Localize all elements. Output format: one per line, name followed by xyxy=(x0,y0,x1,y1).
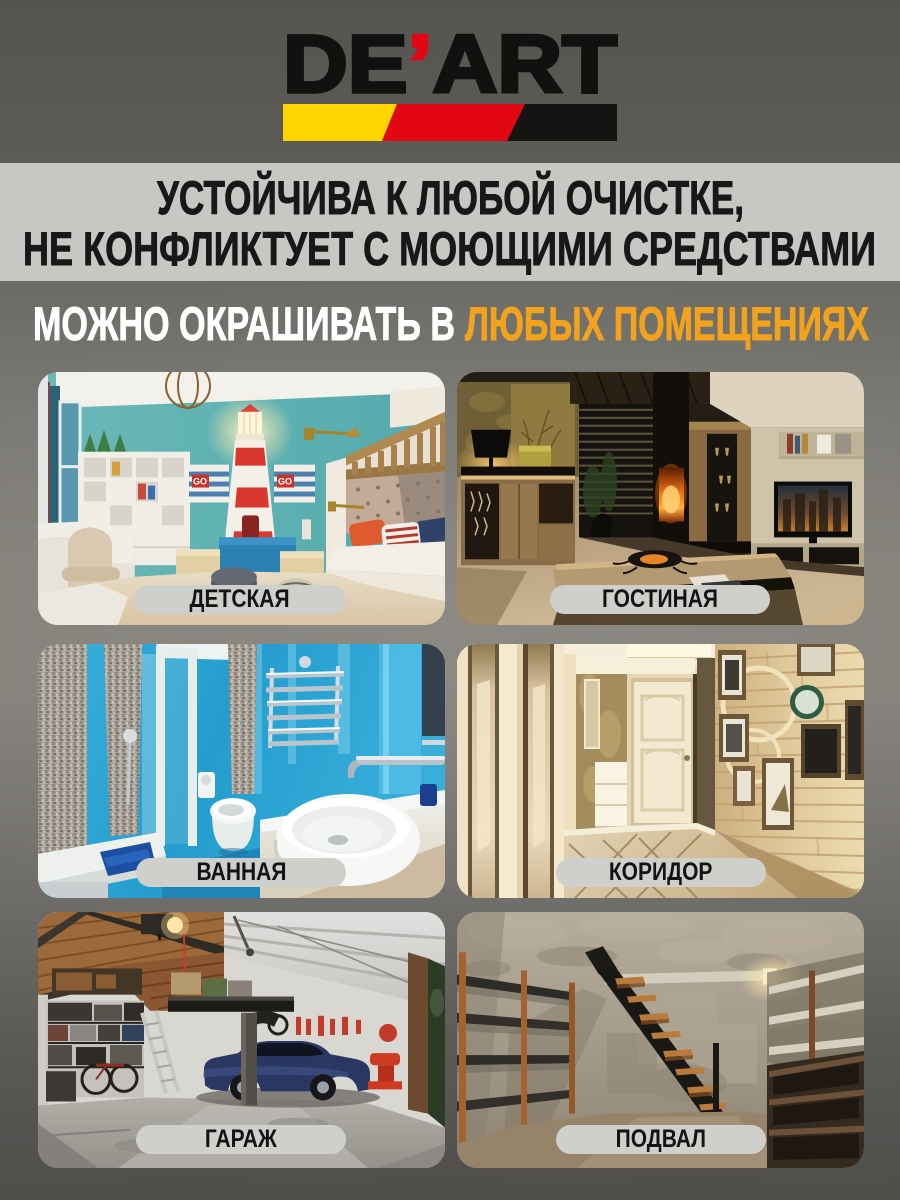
svg-text:ЛЮБЫХ ПОМЕЩЕНИЯХ: ЛЮБЫХ ПОМЕЩЕНИЯХ xyxy=(465,297,869,350)
svg-text:УСТОЙЧИВА К ЛЮБОЙ ОЧИСТКЕ,: УСТОЙЧИВА К ЛЮБОЙ ОЧИСТКЕ, xyxy=(157,171,744,224)
svg-text:DE’ART: DE’ART xyxy=(283,19,617,110)
svg-text:НЕ КОНФЛИКТУЕТ С МОЮЩИМИ СРЕДС: НЕ КОНФЛИКТУЕТ С МОЮЩИМИ СРЕДСТВАМИ xyxy=(23,222,876,275)
svg-text:GO: GO xyxy=(278,477,292,487)
svg-text:GO: GO xyxy=(193,477,207,487)
svg-text:МОЖНО ОКРАШИВАТЬ В: МОЖНО ОКРАШИВАТЬ В xyxy=(33,297,455,350)
